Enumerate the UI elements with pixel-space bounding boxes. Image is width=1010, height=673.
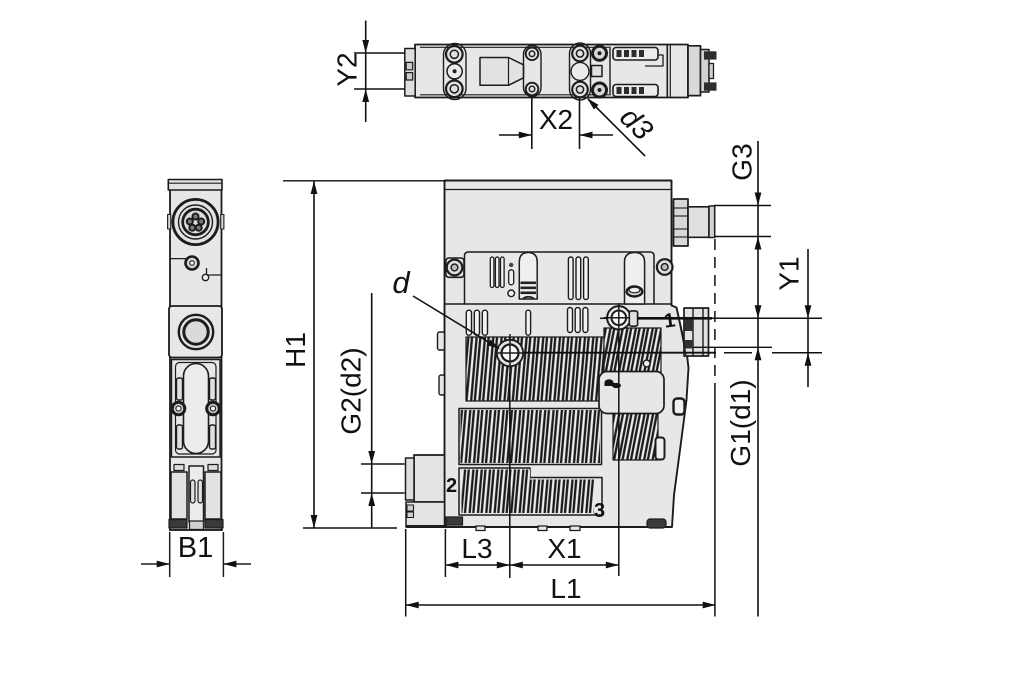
svg-text:d: d [392, 265, 411, 300]
svg-text:G2(d2): G2(d2) [336, 347, 367, 434]
svg-text:H1: H1 [280, 332, 311, 368]
svg-text:L1: L1 [550, 573, 581, 604]
svg-text:G3: G3 [727, 143, 758, 180]
svg-text:2: 2 [446, 475, 457, 497]
svg-text:Y1: Y1 [774, 256, 805, 290]
svg-text:G1(d1): G1(d1) [725, 379, 756, 466]
svg-text:Y2: Y2 [332, 52, 363, 86]
svg-text:3: 3 [594, 500, 605, 522]
svg-text:X2: X2 [539, 104, 573, 135]
svg-text:L3: L3 [461, 533, 492, 564]
svg-text:B1: B1 [178, 532, 213, 564]
svg-text:X1: X1 [547, 533, 581, 564]
